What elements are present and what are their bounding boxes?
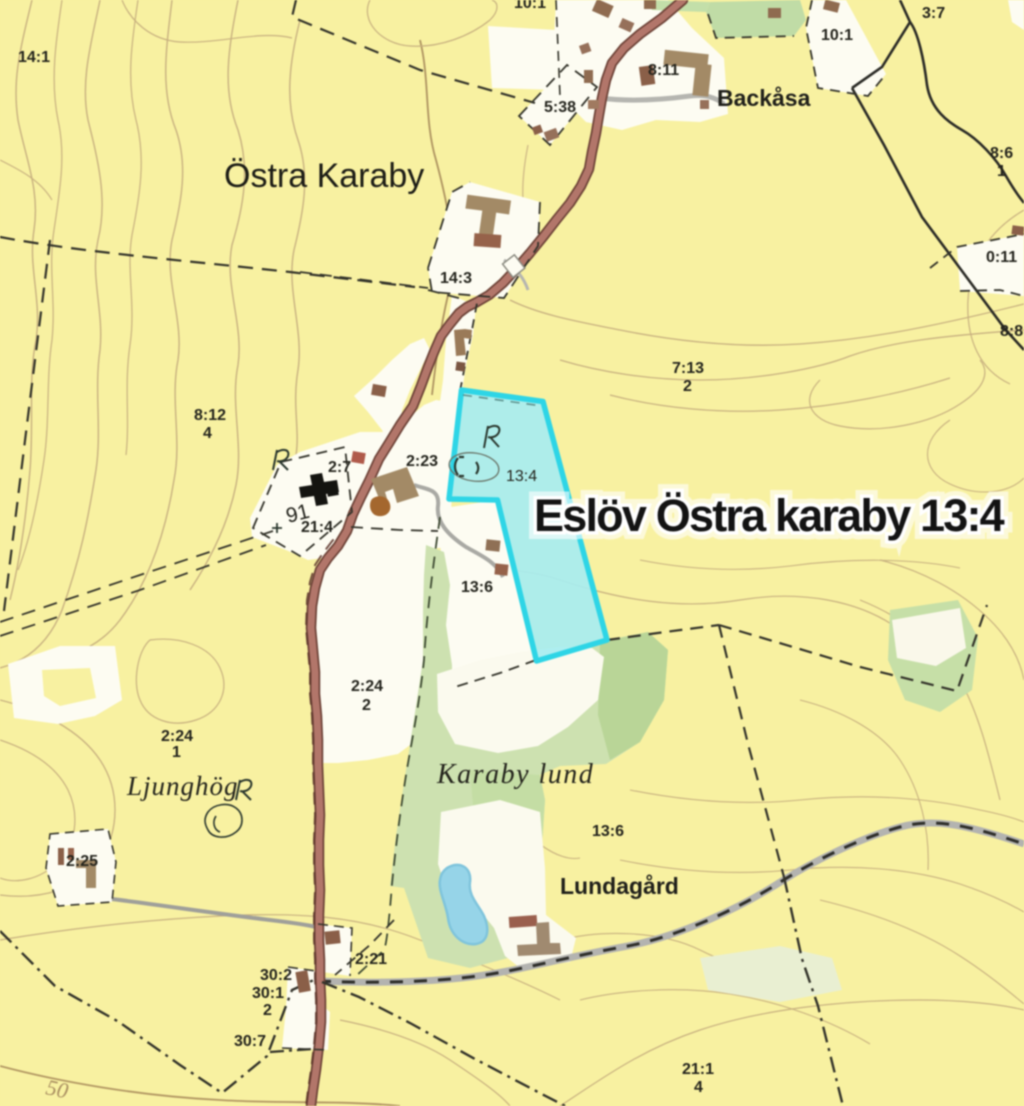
svg-text:8:6: 8:6 xyxy=(990,145,1013,162)
svg-text:13:4: 13:4 xyxy=(506,468,537,485)
svg-text:1: 1 xyxy=(997,163,1006,180)
svg-text:1: 1 xyxy=(172,744,181,761)
svg-text:Backåsa: Backåsa xyxy=(717,85,811,111)
svg-text:13:6: 13:6 xyxy=(592,823,624,840)
svg-text:2: 2 xyxy=(683,378,692,395)
svg-text:7:13: 7:13 xyxy=(672,360,704,377)
svg-text:2: 2 xyxy=(263,1002,272,1019)
svg-text:21:4: 21:4 xyxy=(301,519,333,536)
svg-text:8:8: 8:8 xyxy=(1000,323,1023,340)
svg-text:Eslöv Östra karaby 13:4: Eslöv Östra karaby 13:4 xyxy=(534,490,1005,541)
svg-text:8:11: 8:11 xyxy=(648,62,679,79)
svg-text:8:12: 8:12 xyxy=(194,407,226,424)
svg-text:Ljunghög: Ljunghög xyxy=(126,771,239,801)
svg-text:4: 4 xyxy=(203,425,212,442)
svg-text:10:1: 10:1 xyxy=(514,0,546,12)
svg-text:0:11: 0:11 xyxy=(986,249,1017,266)
svg-text:3:7: 3:7 xyxy=(922,5,945,22)
svg-text:2:24: 2:24 xyxy=(161,728,193,745)
svg-text:Lundagård: Lundagård xyxy=(560,873,679,899)
svg-text:2:7: 2:7 xyxy=(328,459,351,476)
svg-text:Karaby lund: Karaby lund xyxy=(436,759,594,790)
svg-text:4: 4 xyxy=(694,1079,703,1096)
svg-text:2:23: 2:23 xyxy=(406,453,438,470)
svg-text:21:1: 21:1 xyxy=(682,1061,714,1078)
svg-text:2:21: 2:21 xyxy=(355,951,387,968)
svg-text:Östra Karaby: Östra Karaby xyxy=(224,157,424,195)
svg-text:30:7: 30:7 xyxy=(234,1033,266,1050)
svg-text:5:38: 5:38 xyxy=(544,99,576,116)
svg-text:2:25: 2:25 xyxy=(66,853,98,870)
svg-text:14:3: 14:3 xyxy=(440,270,472,287)
svg-text:2: 2 xyxy=(362,697,371,714)
svg-text:10:1: 10:1 xyxy=(821,27,853,44)
svg-text:13:6: 13:6 xyxy=(461,579,493,596)
svg-text:30:2: 30:2 xyxy=(260,967,292,984)
svg-text:2:24: 2:24 xyxy=(351,678,383,695)
svg-text:30:1: 30:1 xyxy=(252,985,284,1002)
svg-text:14:1: 14:1 xyxy=(18,49,50,66)
